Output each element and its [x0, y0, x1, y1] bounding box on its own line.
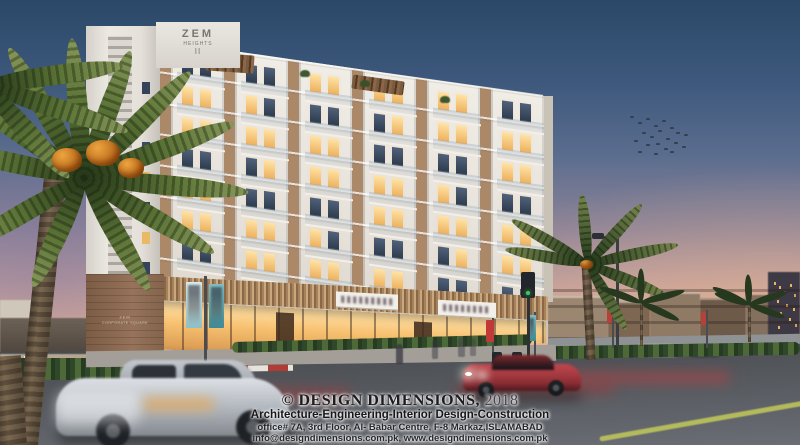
- balcony: [177, 258, 225, 277]
- date-fruit-cluster: [118, 158, 144, 178]
- shop-signboard-1: [336, 291, 398, 310]
- address-line: office# 7A, 3rd Floor, Al- Babar Centre,…: [0, 422, 800, 433]
- architectural-rendering: ZEM HEIGHTS II ZEM CORPORATE SQUARE: [0, 0, 800, 445]
- shop-signboard-2: [438, 300, 496, 319]
- sign-text-blur: [341, 296, 393, 306]
- date-fruit-cluster: [52, 148, 82, 172]
- pedestrian: [470, 338, 476, 356]
- corner-sign: ZEM CORPORATE SQUARE: [100, 315, 150, 326]
- building-side-face: [544, 96, 553, 302]
- copyright-line: © DESIGN DIMENSIONS, 2018: [0, 392, 800, 409]
- pedestrian: [458, 337, 465, 357]
- red-banner-4: [701, 312, 706, 325]
- copyright-text: © DESIGN DIMENSIONS,: [282, 392, 480, 409]
- credit-overlay: © DESIGN DIMENSIONS, 2018 Architecture-E…: [0, 392, 800, 444]
- banner-teal: [209, 284, 224, 328]
- corner-brick-pillar: ZEM CORPORATE SQUARE: [86, 274, 164, 354]
- contact-line: info@designdimensions.com.pk, www.design…: [0, 433, 800, 444]
- tail-light-trail-right: [560, 372, 730, 383]
- red-banner-1: [486, 320, 494, 342]
- bird-flock: [630, 116, 634, 118]
- signal-green-light: [526, 291, 530, 295]
- corner-sign-line2: CORPORATE SQUARE: [100, 320, 150, 325]
- year-text: 2018: [484, 392, 518, 409]
- bg-palm-trunk-1: [640, 300, 643, 346]
- rooftop-sign-name: ZEM: [156, 28, 240, 40]
- palm-fruit: [580, 260, 593, 269]
- banner-light: [186, 282, 202, 328]
- bg-palm-trunk-2: [748, 302, 751, 342]
- roof-plants: [300, 70, 310, 77]
- rooftop-sign: ZEM HEIGHTS II: [156, 22, 240, 68]
- palm-frond: [638, 269, 645, 303]
- pedestrian: [396, 344, 403, 364]
- pedestrian: [432, 340, 438, 359]
- flag-pole-4: [706, 310, 708, 348]
- red-car-cabin: [492, 355, 554, 370]
- banner-artwork: [211, 287, 222, 325]
- sign-text-blur: [443, 304, 491, 314]
- tagline-line: Architecture-Engineering-Interior Design…: [0, 409, 800, 422]
- highrise-lit-windows: [774, 282, 776, 285]
- date-fruit-cluster: [86, 140, 120, 166]
- rooftop-sign-number: II: [156, 47, 240, 56]
- banner-artwork: [188, 285, 200, 325]
- tower-windows-dark: [142, 82, 150, 94]
- banner-pole: [204, 276, 207, 372]
- red-car-headlight: [465, 372, 472, 376]
